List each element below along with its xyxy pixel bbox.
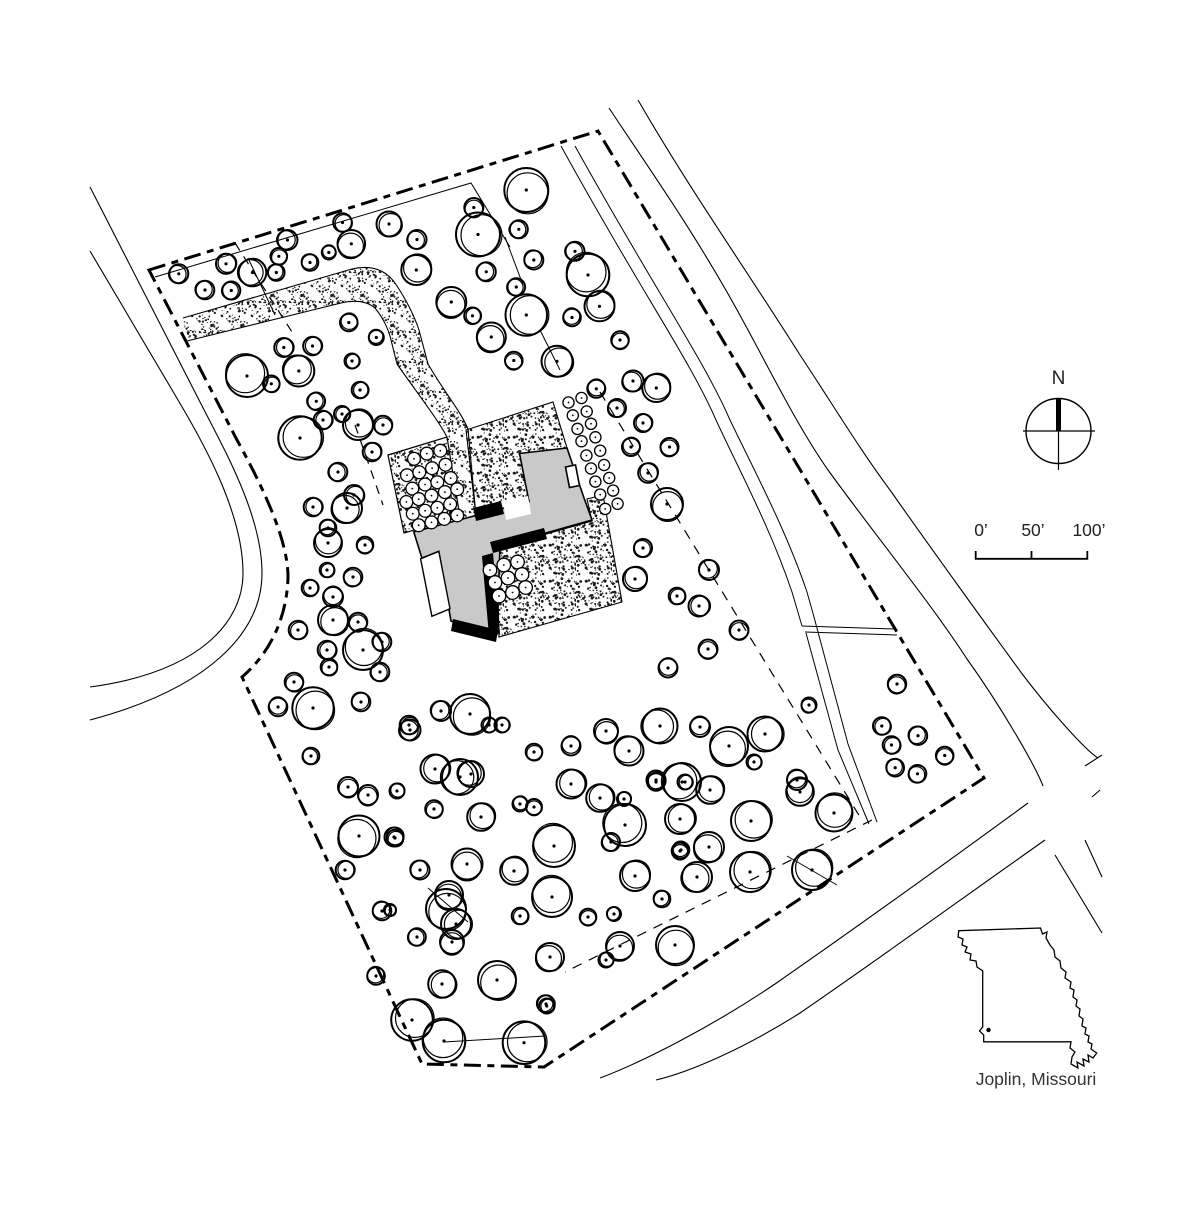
svg-text:100’: 100’ [1072, 520, 1105, 540]
svg-text:0’: 0’ [974, 520, 988, 540]
svg-text:Joplin, Missouri: Joplin, Missouri [976, 1069, 1097, 1089]
svg-text:50’: 50’ [1021, 520, 1044, 540]
svg-text:N: N [1052, 368, 1066, 389]
